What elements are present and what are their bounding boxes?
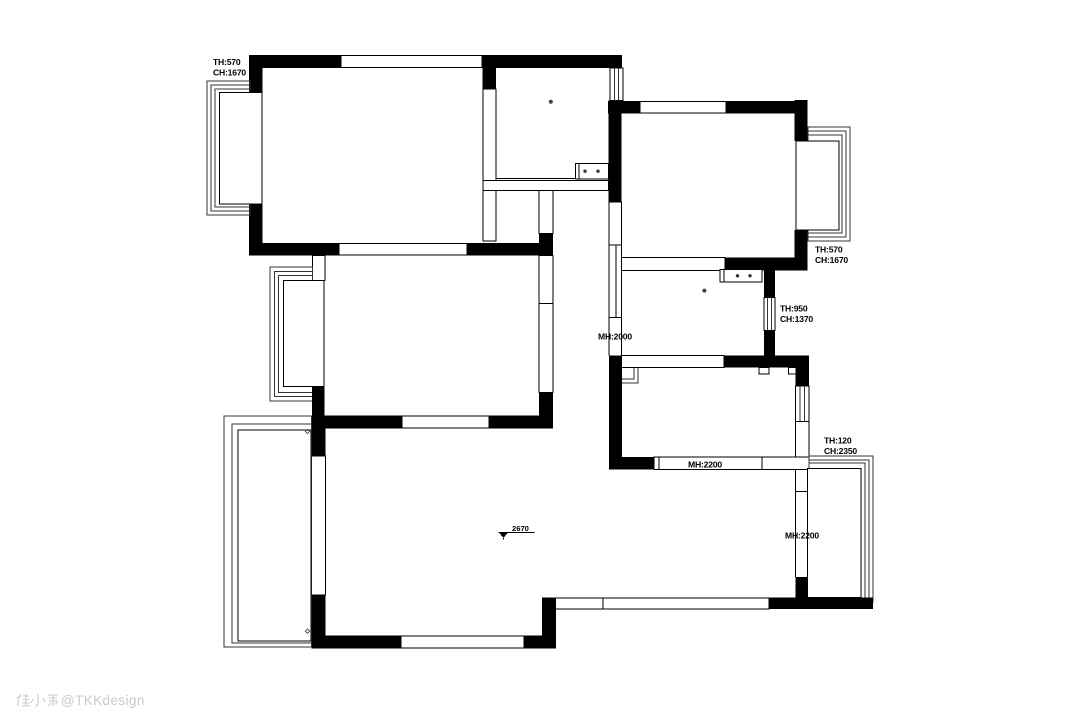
svg-text:TH:120: TH:120: [824, 436, 852, 446]
svg-text:TH:950: TH:950: [780, 304, 808, 314]
svg-text:MH:2200: MH:2200: [785, 531, 819, 541]
svg-text:MH:2000: MH:2000: [598, 332, 632, 342]
svg-text:TH:570: TH:570: [213, 57, 241, 67]
svg-text:@TKKdesign: @TKKdesign: [61, 693, 145, 708]
svg-text:CH:2350: CH:2350: [824, 446, 857, 456]
svg-text:CH:1670: CH:1670: [815, 255, 848, 265]
svg-text:CH:1370: CH:1370: [780, 314, 813, 324]
svg-text:TH:570: TH:570: [815, 245, 843, 255]
svg-text:CH:1670: CH:1670: [213, 68, 246, 78]
svg-text:MH:2200: MH:2200: [688, 460, 722, 470]
svg-text:2670: 2670: [512, 524, 529, 533]
